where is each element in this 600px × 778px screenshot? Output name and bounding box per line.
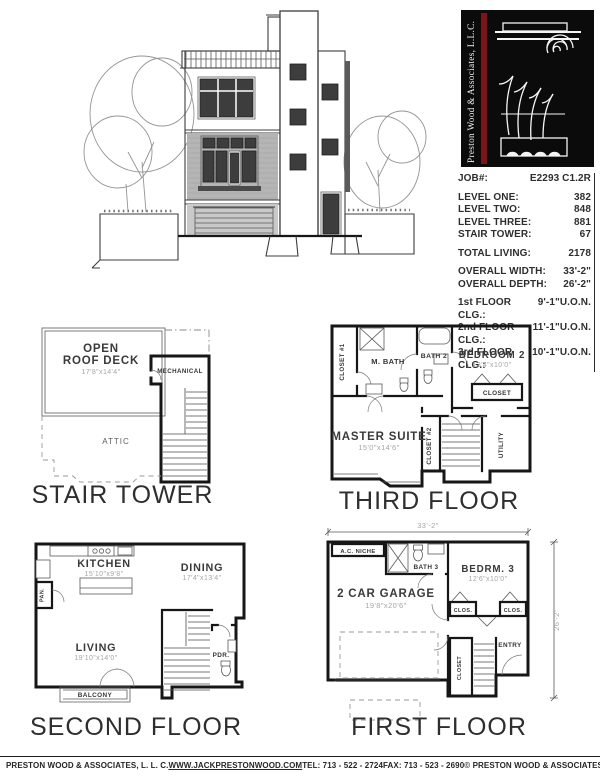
level-two-value: 848 [574,204,591,217]
footer-copyright: © PRESTON WOOD & ASSOCIATES, L. L. C. CO… [464,761,600,770]
overall-width-value: 33'-2" [563,266,591,279]
job-label: JOB#: [458,173,488,186]
first-stairs [474,644,494,686]
job-value: E2293 C1.2R [530,173,591,186]
overall-depth-value: 26'-2" [563,279,591,292]
stair-tower-title: STAIR TOWER [30,481,215,510]
pdr-sink-icon [228,640,236,652]
roof-deck-label1: OPEN [83,343,119,355]
second-floor-title: SECOND FLOOR [20,713,252,742]
footer-company: PRESTON WOOD & ASSOCIATES, L. L. C. [6,761,168,770]
side-wall-strip [345,61,350,192]
bath3-toilet-icon [414,549,423,561]
level-two-label: LEVEL TWO: [458,204,520,217]
overall-width-label: OVERALL WIDTH: [458,266,546,279]
closet-bifold-doors [474,374,516,383]
company-logo: Preston Wood & Associates, L.L.C. [461,10,594,167]
bedrm3-label: BEDRM. 3 [461,564,514,575]
level-one-value: 382 [574,192,591,205]
kitchen-label: KITCHEN [77,558,131,570]
logo-red-stripe [481,13,487,164]
rear-block [318,51,350,236]
level-three-value: 881 [574,217,591,230]
clg1-value: 9'-1"U.O.N. [538,297,591,322]
overall-depth-label: OVERALL DEPTH: [458,279,547,292]
fridge-icon [36,560,50,578]
depth-dimension: 26'-2" [550,539,561,701]
bath3-label: BATH 3 [413,564,438,571]
second-door-arcs [52,590,230,687]
planter-left [92,211,178,268]
clos-left-label: CLOS. [454,608,473,614]
master-dim: 15'0"x14'6" [358,443,399,452]
house-main-block [180,51,285,236]
roof-deck-label2: ROOF DECK [63,355,139,367]
first-floor-plan: 33'-2" 26'-2" A.C. NICHE BATH 3 BEDRM. 3… [320,520,562,726]
tub-icon [419,328,450,344]
garage-dim: 19'8"x20'6" [365,601,406,610]
planter-right [345,210,414,254]
first-closet-label: CLOSET [457,656,463,681]
kitchen-dim: 15'10"x9'8" [85,571,124,578]
kitchen-counters [36,546,134,594]
clg2-value: 11'-1"U.O.N. [533,322,591,347]
third-floor-plan: CLOSET #1 M. BATH BATH 2 BEDROOM 2 13'4"… [322,316,540,496]
second-interior-walls [36,582,236,687]
logo-vertical-text: Preston Wood & Associates, L.L.C. [467,21,477,163]
total-living-label: TOTAL LIVING: [458,248,531,261]
first-floor-title: FIRST FLOOR [325,713,553,742]
stair-tower-row: STAIR TOWER:67 [458,229,591,242]
width-dim-label: 33'-2" [417,521,439,530]
garage-label: 2 CAR GARAGE [337,588,435,600]
stair-tower-block [280,11,318,236]
roof-shingles [182,51,283,68]
overall-width-row: OVERALL WIDTH:33'-2" [458,266,591,279]
attic-label: ATTIC [102,437,130,446]
kitchen-island [80,578,132,594]
third-floor-title: THIRD FLOOR [318,487,540,516]
level-three-row: LEVEL THREE:881 [458,217,591,230]
level-two-row: LEVEL TWO:848 [458,204,591,217]
depth-dim-label: 26'-2" [552,609,561,631]
stair-tower-value: 67 [580,229,591,242]
attic-dashed-outline [42,416,161,482]
entry-label: ENTRY [498,642,522,649]
mbath-label: M. BATH [371,357,405,366]
mechanical-label: MECHANICAL [157,368,203,375]
garage-door [187,204,278,236]
pdr-label: PDR. [213,652,230,659]
floor-band [185,130,280,133]
closet1-label: CLOSET #1 [339,343,346,380]
third-floor-window [198,77,255,119]
entry-door-elevation [321,192,341,236]
third-stairs [442,424,480,466]
tree-right-icon [344,111,426,212]
stairs [163,388,207,476]
level-one-label: LEVEL ONE: [458,192,519,205]
master-label: MASTER SUITE [331,431,426,443]
footer-tel: TEL: 713 - 522 - 2724 [302,761,383,770]
job-number-row: JOB#: E2293 C1.2R [458,173,591,186]
clg3-value: 10'-1"U.O.N. [532,347,591,372]
total-living-row: TOTAL LIVING:2178 [458,248,591,261]
closet-label: CLOSET [483,390,511,397]
parking-dashed [340,632,438,678]
bedroom2-label: BEDROOM 2 [459,350,526,361]
roof-deck-dim: 17'8"x14'4" [82,369,121,376]
floor-band-low [185,200,280,204]
clos-right-label: CLOS. [504,608,523,614]
second-stairs [164,612,210,690]
living-dim: 19'10"x14'0" [74,655,117,662]
utility-label: UTILITY [498,431,505,458]
vanity-icon [366,384,382,394]
balcony-ledge [198,186,261,191]
total-living-value: 2178 [568,248,591,261]
dining-dim: 17'4"x13'4" [183,575,222,582]
kitchen-sink-icon [118,547,132,555]
bath2-label: BATH 2 [421,353,447,360]
pan-label: PAN. [40,588,46,602]
roof-dash-line [165,330,209,354]
chimney [268,17,281,51]
closet2-label: CLOSET #2 [426,427,433,464]
ac-niche-label: A.C. NICHE [340,549,375,555]
stair-tower-label: STAIR TOWER: [458,229,532,242]
dining-label: DINING [181,562,224,574]
balcony-label: BALCONY [78,692,113,699]
width-dimension: 33'-2" [325,521,531,536]
level-three-label: LEVEL THREE: [458,217,531,230]
second-floor-plan: KITCHEN 15'10"x9'8" DINING 17'4"x13'4" L… [22,530,252,716]
bedroom2-dim: 13'4"x10'0" [473,362,512,369]
tree-left-icon [84,56,194,212]
front-elevation-drawing [30,2,450,280]
living-label: LIVING [76,642,117,654]
bedrm3-dim: 12'6"x10'0" [469,576,508,583]
footer-fax: FAX: 713 - 523 - 2690 [383,761,464,770]
level-one-row: LEVEL ONE:382 [458,192,591,205]
stair-tower-plan: OPEN ROOF DECK 17'8"x14'4" MECHANICAL AT… [28,314,213,486]
footer-website: WWW.JACKPRESTONWOOD.COM [168,761,302,770]
footer-bar: PRESTON WOOD & ASSOCIATES, L. L. C. WWW.… [0,756,600,770]
overall-depth-row: OVERALL DEPTH:26'-2" [458,279,591,292]
bath3-sink-icon [428,544,444,554]
